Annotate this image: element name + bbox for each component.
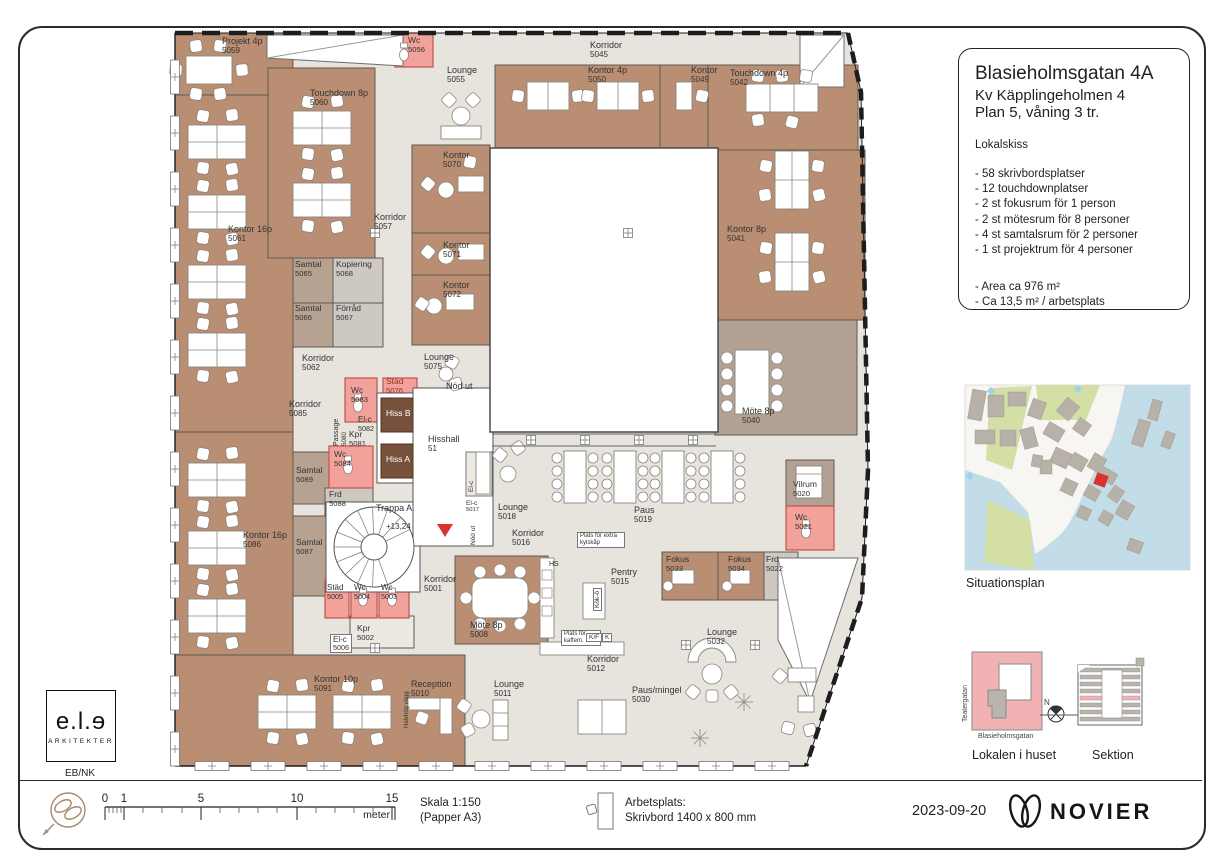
room-kopiering-5068 xyxy=(333,258,383,303)
novier-brand: NOVIER xyxy=(1050,799,1152,825)
program-item: - 2 st fokusrum för 1 person xyxy=(975,197,1173,212)
scale-value: Skala 1:150 xyxy=(420,796,481,811)
architect-logo-sub: ARKITEKTER xyxy=(48,738,114,745)
situationsplan-map xyxy=(965,385,1190,570)
courtyard xyxy=(490,148,718,432)
sektion-caption: Sektion xyxy=(1092,748,1134,762)
date-label: 2023-09-20 xyxy=(912,803,986,819)
title-block: Blasieholmsgatan 4A Kv Käpplingeholmen 4… xyxy=(958,48,1190,310)
street-label-teatergatan: Teatergatan xyxy=(962,685,969,722)
architect-logo-text: e.l.ɘ xyxy=(56,708,106,736)
scale-number: 0 xyxy=(102,793,108,805)
workplace-note: Arbetsplats: Skrivbord 1400 x 800 mm xyxy=(625,796,756,826)
program-item: - 1 st projektrum för 4 personer xyxy=(975,243,1173,258)
spiral-stair xyxy=(334,507,414,587)
room-samtal-5065 xyxy=(293,258,333,303)
architect-initials: EB/NK xyxy=(46,768,114,779)
scale-text: Skala 1:150 (Papper A3) xyxy=(420,796,481,826)
room-kontor-5091 xyxy=(175,655,465,766)
paper-size: (Papper A3) xyxy=(420,811,481,826)
scale-number: 1 xyxy=(121,793,127,805)
desk-icon xyxy=(586,793,613,829)
room-wc-5083 xyxy=(345,378,377,422)
scale-number: 5 xyxy=(198,793,204,805)
room-wc-5021 xyxy=(786,506,834,550)
room-samtal-5066 xyxy=(293,303,333,347)
architect-logo: e.l.ɘ ARKITEKTER xyxy=(46,690,116,762)
sektion-diagram xyxy=(1040,658,1144,725)
area-list: - Area ca 976 m²- Ca 13,5 m² / arbetspla… xyxy=(975,280,1173,310)
meter-label: meter xyxy=(350,809,390,821)
program-item: - 2 st mötesrum för 8 personer xyxy=(975,213,1173,228)
floor-plan xyxy=(170,33,868,771)
scale-number: 15 xyxy=(386,793,399,805)
scale-number: 10 xyxy=(291,793,304,805)
room-kpr-5002 xyxy=(350,616,414,648)
hiss-a-box xyxy=(381,444,413,478)
hiss-b-box xyxy=(381,398,413,432)
room-touchdown-5060 xyxy=(268,68,375,258)
novier-logo-icon xyxy=(1007,793,1043,828)
north-label: N xyxy=(1044,698,1050,707)
north-compass-icon xyxy=(1048,706,1064,722)
lokalen-diagram xyxy=(972,652,1064,730)
program-item: - 4 st samtalsrum för 2 personer xyxy=(975,228,1173,243)
north-sketch-icon xyxy=(43,793,85,835)
program-item: - 12 touchdownplatser xyxy=(975,182,1173,197)
street-label-blasieholmsgatan: Blasieholmsgatan xyxy=(978,733,1033,740)
program-item: - 58 skrivbordsplatser xyxy=(975,167,1173,182)
project-subtitle-2: Plan 5, våning 3 tr. xyxy=(975,104,1173,121)
workplace-title: Arbetsplats: xyxy=(625,796,756,811)
area-item: - Area ca 976 m² xyxy=(975,280,1173,295)
section-label: Lokalskiss xyxy=(975,139,1173,151)
workplace-desc: Skrivbord 1400 x 800 mm xyxy=(625,811,756,826)
room-forrad-5067 xyxy=(333,303,383,347)
lokalen-caption: Lokalen i huset xyxy=(972,748,1056,762)
program-list: - 58 skrivbordsplatser- 12 touchdownplat… xyxy=(975,167,1173,258)
area-item: - Ca 13,5 m² / arbetsplats xyxy=(975,295,1173,310)
drawing-sheet: Projekt 4p 5059 Wc 5056 Korridor 5045 Lo… xyxy=(0,0,1220,862)
project-subtitle-1: Kv Käpplingeholmen 4 xyxy=(975,87,1173,104)
situationsplan-caption: Situationsplan xyxy=(966,576,1045,590)
project-title: Blasieholmsgatan 4A xyxy=(975,63,1173,85)
